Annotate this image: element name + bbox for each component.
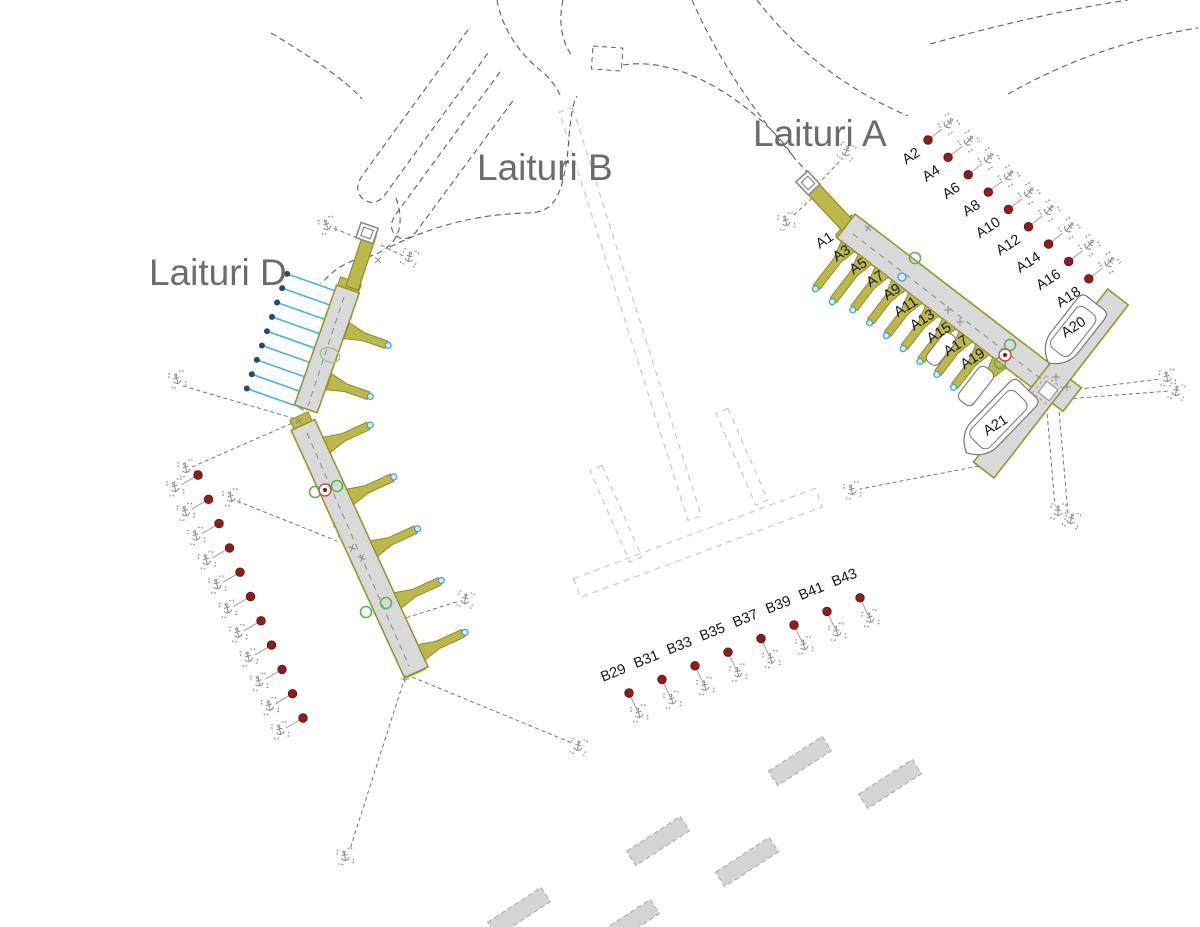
pier-b-ghost-prong <box>590 465 642 562</box>
berth-label-b31: B31 <box>632 647 662 672</box>
berth-a10-marker: A10 <box>973 182 1040 242</box>
berth-label-b33: B33 <box>665 634 695 659</box>
red-buoy-dot <box>267 641 276 650</box>
label-layer: Laituri A Laituri B Laituri D <box>149 113 887 293</box>
pier-d-title: Laituri D <box>149 252 287 293</box>
red-status-ring <box>999 349 1011 361</box>
anchor-icon-frame <box>1078 234 1100 256</box>
red-buoy-dot <box>856 594 865 603</box>
anchor-icon-glyph <box>170 483 180 493</box>
berth-label-b29: B29 <box>599 661 629 686</box>
anchor-icon-ring <box>1165 372 1168 375</box>
berth-label-a4: A4 <box>920 162 944 185</box>
mooring-guy-line <box>381 245 403 256</box>
breakwater-bar <box>488 887 551 927</box>
anchor-icon-ring <box>267 701 270 704</box>
anchor-icon-glyph <box>781 217 791 227</box>
finger-pier-deck <box>344 323 389 353</box>
anchor-icon <box>696 677 714 695</box>
red-buoy-dot <box>1004 205 1013 214</box>
red-buoy-dot <box>236 568 245 577</box>
finger-pier-d-lower <box>370 520 423 557</box>
buoy-marker-d-column <box>177 495 213 521</box>
anchor-icon-ring <box>1090 240 1093 243</box>
red-buoy-dot <box>964 170 973 179</box>
finger-pier-deck <box>323 418 372 453</box>
berth-label-b41: B41 <box>797 579 827 604</box>
ghost-pier-outline <box>573 488 822 597</box>
anchor-icon-glyph <box>1162 373 1171 382</box>
anchor-icon-ring <box>228 492 231 495</box>
berth-label-a12: A12 <box>993 232 1023 259</box>
anchor-icon-ring <box>849 485 852 488</box>
anchor-icon-ring <box>1071 514 1074 517</box>
anchor-icon <box>1018 182 1040 204</box>
anchor-icon <box>240 648 258 666</box>
breakwater <box>716 837 779 886</box>
breakwater <box>769 736 832 785</box>
red-buoy-dot <box>194 471 203 480</box>
finger-pier-d-lower <box>323 416 376 453</box>
anchor-icon-glyph <box>766 655 776 665</box>
red-buoy-dot <box>984 188 993 197</box>
anchor-icon-glyph <box>733 668 743 678</box>
anchor-icon-glyph <box>212 580 222 590</box>
boom-mooring-line <box>267 331 315 348</box>
shoreline-path <box>1008 28 1198 94</box>
berth-label-a10: A10 <box>973 214 1003 241</box>
anchor-icon-ring <box>343 851 346 854</box>
red-buoy-dot <box>204 495 213 504</box>
anchor-icon-ring <box>174 374 177 377</box>
anchor-icon-glyph <box>865 614 875 624</box>
red-buoy-dot <box>658 675 667 684</box>
anchor-icon <box>318 216 337 235</box>
red-buoy-dot <box>288 689 297 698</box>
red-buoy-dot <box>215 519 224 528</box>
shoreline-path <box>271 33 362 99</box>
anchor-icon-frame <box>240 648 258 666</box>
berth-label-b37: B37 <box>731 607 761 632</box>
pier-b-ghost-prong <box>716 408 768 505</box>
survey-plus-mark <box>372 254 383 265</box>
breakwater-bar <box>597 899 660 927</box>
anchor-icon-frame <box>1098 252 1120 274</box>
pier-b-title: Laituri B <box>477 147 613 188</box>
anchor-icon-glyph <box>1171 387 1180 396</box>
berth-label-a2: A2 <box>900 145 924 168</box>
mooring-guy-line <box>792 198 812 217</box>
anchor-icon-frame <box>250 673 268 691</box>
green-status-ring <box>361 607 372 618</box>
anchor-icon-frame <box>1038 200 1060 222</box>
anchor-icon-ring <box>409 252 412 255</box>
red-status-ring <box>319 484 331 496</box>
ghost-pier-outline <box>716 408 768 505</box>
finger-pier-deck <box>326 374 371 404</box>
anchor-icon-ring <box>214 579 217 582</box>
red-buoy-dot <box>246 592 255 601</box>
anchor-icon <box>938 113 960 135</box>
anchor-icon-glyph <box>832 628 842 638</box>
buoy-marker-d-column <box>208 568 244 594</box>
breakwater-bar <box>859 759 922 808</box>
red-buoy-dot <box>257 617 266 626</box>
harbor-map: A1A3A5A7A9A11A13A15A17A19A20A21A2A4A6A8A… <box>0 0 1200 927</box>
anchor-icon <box>198 551 216 569</box>
anchor-icon-ring <box>636 708 639 711</box>
anchor-icon-ring <box>1176 386 1179 389</box>
anchor-icon <box>177 503 195 521</box>
red-buoy-dot <box>1064 257 1073 266</box>
mooring-guy-line <box>237 501 337 541</box>
pier-d-lower-deck <box>291 420 428 678</box>
red-ring-dot <box>323 488 327 492</box>
berth-label-b39: B39 <box>764 593 794 618</box>
shore-stub-outline <box>591 46 623 71</box>
abutment-outer <box>356 223 378 244</box>
breakwater <box>597 899 660 927</box>
anchor-icon-ring <box>235 628 238 631</box>
finger-pier-d-lower <box>418 623 471 660</box>
buoy-marker-d-column <box>261 689 297 715</box>
anchor-icon-ring <box>183 463 186 466</box>
anchor-icon <box>229 624 247 642</box>
anchor-icon-ring <box>834 626 837 629</box>
berth-label-a8: A8 <box>960 197 984 220</box>
boom-mooring-line <box>272 317 320 334</box>
anchor-icon-ring <box>246 652 249 655</box>
anchor-icon-glyph <box>634 709 644 719</box>
anchor-icon <box>177 459 195 477</box>
anchor-icon-glyph <box>847 486 857 496</box>
harbor-map-canvas[interactable]: A1A3A5A7A9A11A13A15A17A19A20A21A2A4A6A8A… <box>0 0 1200 927</box>
anchor-icon <box>998 165 1020 187</box>
anchor-icon-glyph <box>1054 508 1062 516</box>
anchor-icon <box>337 848 354 865</box>
anchor-icon-glyph <box>244 653 254 663</box>
berth-label-a6: A6 <box>940 180 964 203</box>
finger-pier-deck <box>394 574 443 609</box>
anchor-icon-ring <box>465 594 468 597</box>
mooring-guy-line <box>1058 398 1068 514</box>
teal-status-dot <box>898 273 906 281</box>
ghost-pier-outline <box>590 465 642 562</box>
anchor-icon <box>1062 510 1080 528</box>
boom-mooring-line <box>252 374 300 391</box>
anchor-icon-glyph <box>172 375 182 385</box>
pier-d-lower <box>291 420 428 678</box>
buoy-marker-d-column <box>166 471 202 497</box>
anchor-icon-ring <box>783 216 786 219</box>
buoy-marker-d-column <box>240 641 276 667</box>
pier-d-abutment <box>356 223 378 244</box>
anchor-icon-glyph <box>202 556 212 566</box>
red-buoy-dot <box>757 634 766 643</box>
anchor-icon-ring <box>1050 205 1053 208</box>
red-buoy-dot <box>1044 240 1053 249</box>
boom-mooring-dot <box>259 343 265 349</box>
anchor-icon <box>271 721 289 739</box>
breakwater-layer <box>488 736 922 927</box>
anchor-icon-ring <box>669 694 672 697</box>
anchor-icon-ring <box>277 725 280 728</box>
red-buoy-dot <box>823 607 832 616</box>
anchor-icon-ring <box>990 153 993 156</box>
buoy-marker-d-column <box>271 714 307 740</box>
anchor-icon-ring <box>183 506 186 509</box>
anchor-icon-ring <box>950 118 953 121</box>
red-buoy-dot <box>691 662 700 671</box>
boom-mooring-dot <box>254 357 260 363</box>
anchor-icon-glyph <box>460 595 469 604</box>
anchor-icon <box>762 650 780 668</box>
finger-pier-d-lower <box>394 572 447 609</box>
anchor-icon <box>1051 504 1066 519</box>
anchor-icon-glyph <box>1066 515 1076 525</box>
anchor-icon <box>187 527 205 545</box>
mooring-guy-line <box>350 677 405 849</box>
shoreline-path <box>561 0 572 56</box>
anchor-icon-glyph <box>667 696 677 706</box>
berth-b43-marker: B43 <box>830 566 880 628</box>
shoreline-path <box>497 0 560 95</box>
pier-a-title: Laituri A <box>753 113 887 154</box>
anchor-icon <box>828 623 846 641</box>
anchor-icon <box>166 478 184 496</box>
anchor-icon-ring <box>256 676 259 679</box>
mooring-guy-line <box>1066 391 1169 399</box>
boom-mooring-line <box>282 288 330 305</box>
red-buoy-dot <box>299 714 308 723</box>
anchor-icon-ring <box>1057 506 1059 508</box>
anchor-icon-ring <box>1030 188 1033 191</box>
anchor-icon <box>219 600 237 618</box>
mooring-guy-line <box>1046 400 1055 506</box>
anchor-icon-glyph <box>275 726 285 736</box>
anchor-icon-ring <box>225 603 228 606</box>
anchor-icon <box>795 636 813 654</box>
berth-label-b43: B43 <box>830 566 860 591</box>
berth-label-b35: B35 <box>698 620 728 645</box>
red-buoy-dot <box>625 689 634 698</box>
red-buoy-dot <box>944 153 953 162</box>
anchor-icon-ring <box>1010 170 1013 173</box>
anchor-icon <box>1098 252 1120 274</box>
shore-stub <box>591 46 623 71</box>
anchor-icon-glyph <box>573 742 582 751</box>
red-ring-dot <box>1003 353 1007 357</box>
anchor-icon-glyph <box>191 532 201 542</box>
anchor-icon <box>958 130 980 152</box>
anchor-icon-glyph <box>181 464 191 474</box>
anchor-icon <box>1078 234 1100 256</box>
anchor-icon-ring <box>193 530 196 533</box>
anchor-icon <box>222 488 240 506</box>
anchor-icon-glyph <box>322 221 332 231</box>
anchor-icon <box>1168 383 1185 400</box>
red-buoy-dot <box>790 621 799 630</box>
anchor-icon <box>630 704 648 722</box>
anchor-icon <box>843 481 861 499</box>
anchor-icon <box>1058 217 1080 239</box>
anchor-icon <box>400 248 418 266</box>
boom-mooring-dot <box>274 300 280 306</box>
anchor-icon-ring <box>324 220 327 223</box>
breakwater-bar <box>769 736 832 785</box>
anchor-icon-glyph <box>181 507 191 517</box>
boom-mooring-dot <box>264 328 270 334</box>
breakwater <box>627 816 690 865</box>
mooring-guy-line <box>822 158 843 180</box>
anchor-icon-glyph <box>340 852 349 861</box>
buoy-marker-d-column <box>187 519 223 545</box>
buoy-marker-d-column <box>219 592 255 618</box>
red-buoy-dot <box>278 665 287 674</box>
anchor-icon-glyph <box>254 678 264 688</box>
mooring-guy-line <box>412 677 572 743</box>
finger-pier-d-lower <box>347 468 400 505</box>
anchor-icon-glyph <box>265 702 275 712</box>
pier-b-ghost-bar <box>573 488 822 597</box>
anchor-icon-ring <box>1070 222 1073 225</box>
shoreline-path <box>358 30 488 202</box>
anchor-icon <box>1038 200 1060 222</box>
shoreline-layer <box>271 0 1198 284</box>
anchor-icon-ring <box>702 681 705 684</box>
anchor-icon <box>978 148 1000 170</box>
anchor-icon-ring <box>768 653 771 656</box>
anchor-icon-ring <box>801 640 804 643</box>
finger-pier-d-upper <box>344 323 394 355</box>
anchor-icon-ring <box>1111 257 1114 260</box>
boom-mooring-line <box>257 360 305 377</box>
red-buoy-dot <box>1024 222 1033 231</box>
red-buoy-dot <box>724 648 733 657</box>
anchor-icon-frame <box>261 697 279 715</box>
anchor-icon-ring <box>735 667 738 670</box>
anchor-icon-glyph <box>404 253 414 263</box>
anchor-icon <box>729 663 747 681</box>
berth-label-a14: A14 <box>1013 249 1043 276</box>
shoreline-path <box>930 0 1128 44</box>
buoy-marker-d-column <box>250 665 286 691</box>
anchor-icon-ring <box>867 613 870 616</box>
buoy-marker-d-column <box>229 617 265 643</box>
anchor-icon <box>457 591 474 608</box>
finger-pier-d-upper <box>326 374 376 406</box>
breakwater-bar <box>716 837 779 886</box>
finger-pier-deck <box>347 470 396 505</box>
anchor-icon-ring <box>204 555 207 558</box>
anchor-icon-glyph <box>799 641 809 651</box>
anchor-icon-glyph <box>226 493 236 503</box>
boom-mooring-dot <box>269 314 275 320</box>
anchor-icon <box>208 575 226 593</box>
anchor-icon <box>861 609 879 627</box>
red-buoy-dot <box>1085 275 1094 284</box>
anchor-icon-frame <box>271 721 289 739</box>
finger-pier-deck <box>370 522 419 557</box>
red-buoy-dot <box>225 544 234 553</box>
anchor-icon <box>261 697 279 715</box>
anchor-icon <box>1159 369 1176 386</box>
boom-mooring-dot <box>249 371 255 377</box>
mooring-guy-line <box>860 466 979 489</box>
breakwater <box>859 759 922 808</box>
berth-label-a16: A16 <box>1034 266 1064 293</box>
berth-a16-marker: A16 <box>1034 234 1101 294</box>
boom-mooring-dot <box>244 386 250 392</box>
anchor-icon-ring <box>578 741 581 744</box>
anchor-icon-ring <box>172 482 175 485</box>
berth-a14-marker: A14 <box>1013 217 1080 277</box>
breakwater <box>488 887 551 927</box>
shoreline-path <box>757 0 908 116</box>
anchor-icon <box>570 738 587 755</box>
boom-mooring-line <box>277 303 325 320</box>
anchor-icon-glyph <box>233 629 243 639</box>
anchor-icon-ring <box>970 136 973 139</box>
finger-pier-deck <box>418 625 467 660</box>
breakwater-bar <box>627 816 690 865</box>
anchor-icon <box>250 673 268 691</box>
boom-mooring-line <box>262 346 310 363</box>
anchor-icon-glyph <box>223 605 233 615</box>
anchor-icon <box>663 691 681 709</box>
mooring-guy-line <box>192 421 297 467</box>
mooring-guy-line <box>183 386 296 419</box>
boom-mooring-line <box>247 389 295 406</box>
buoy-marker-d-column <box>198 544 234 570</box>
red-buoy-dot <box>924 136 933 145</box>
anchor-icon <box>777 212 795 230</box>
berth-a12-marker: A12 <box>993 200 1060 260</box>
anchor-icon-glyph <box>700 682 710 692</box>
